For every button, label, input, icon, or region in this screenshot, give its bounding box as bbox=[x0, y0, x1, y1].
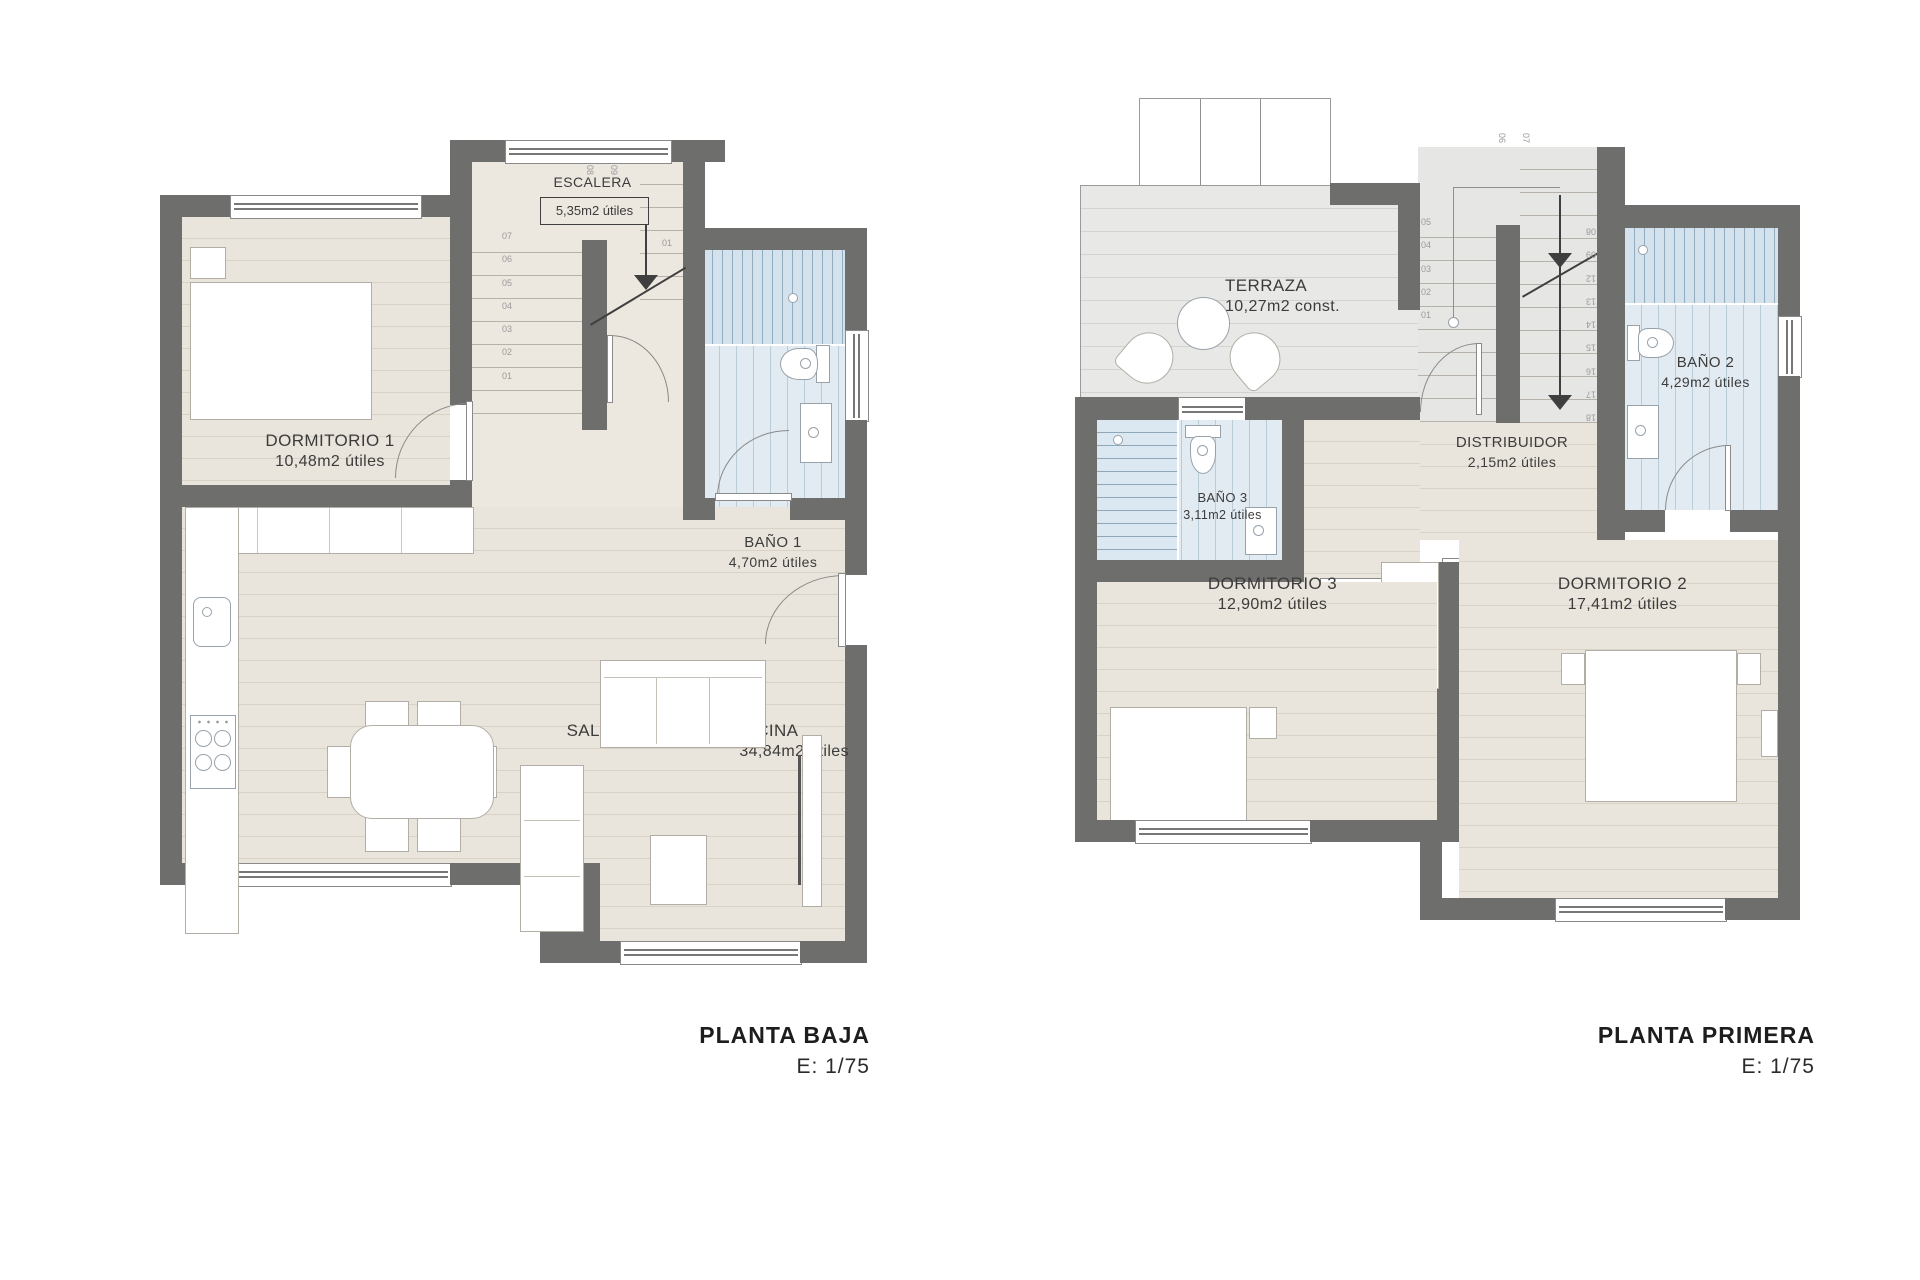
plan-title: PLANTA BAJA bbox=[550, 1022, 870, 1049]
stair-step-numbers-top: 0809 bbox=[578, 165, 626, 175]
sofa-back-line bbox=[604, 677, 762, 678]
handrail bbox=[1453, 187, 1454, 322]
room-name: DORMITORIO 2 bbox=[1490, 573, 1755, 595]
shower-area bbox=[1625, 228, 1778, 303]
burner bbox=[214, 730, 231, 747]
stairwell-outline bbox=[1139, 98, 1331, 186]
sofa-seat-line bbox=[709, 677, 710, 744]
bedroom1-window bbox=[230, 195, 422, 219]
room-name: DISTRIBUIDOR bbox=[1423, 433, 1601, 453]
wall-segment bbox=[683, 140, 705, 250]
room-area: 3,11m2 útiles bbox=[1150, 507, 1295, 523]
wall-segment bbox=[580, 941, 620, 963]
hall-floor bbox=[1304, 420, 1420, 582]
room-area: 5,35m2 útiles bbox=[556, 203, 633, 218]
room-area: 4,29m2 útiles bbox=[1633, 373, 1778, 391]
burner bbox=[214, 754, 231, 771]
washbasin-drain bbox=[1635, 425, 1646, 436]
room-name: BAÑO 1 bbox=[698, 533, 848, 553]
sofa bbox=[600, 660, 766, 748]
hob bbox=[190, 715, 236, 789]
stair-step-number: 01 bbox=[662, 238, 672, 248]
wall-segment bbox=[1398, 183, 1420, 310]
bathroom1-window bbox=[845, 330, 869, 422]
shower-drain bbox=[1638, 245, 1648, 255]
kitchen-sink bbox=[193, 597, 231, 647]
room-name: BAÑO 3 bbox=[1150, 490, 1295, 507]
stair-arrow bbox=[1548, 395, 1572, 410]
living-room-window-right bbox=[620, 941, 802, 965]
wall-segment bbox=[1778, 205, 1800, 316]
plan-caption: PLANTA BAJA E: 1/75 bbox=[550, 1022, 870, 1079]
burner bbox=[195, 754, 212, 771]
washbasin-drain bbox=[808, 427, 819, 438]
wall-segment bbox=[790, 498, 845, 520]
wall-segment bbox=[1245, 397, 1420, 420]
room-label-distribuidor: DISTRIBUIDOR 2,15m2 útiles bbox=[1423, 433, 1601, 471]
wall-segment bbox=[1725, 898, 1800, 920]
wall-segment bbox=[1442, 898, 1555, 920]
escalera-area-box: 5,35m2 útiles bbox=[540, 197, 649, 225]
wall-segment bbox=[1420, 820, 1459, 842]
wall-segment bbox=[845, 250, 867, 330]
bathroom2-window bbox=[1778, 316, 1802, 378]
stair-leader-line bbox=[645, 225, 647, 275]
room-area: 2,15m2 útiles bbox=[1423, 453, 1601, 471]
sofa-seat-line bbox=[524, 820, 580, 821]
room-label-bano3: BAÑO 3 3,11m2 útiles bbox=[1150, 490, 1295, 523]
bed bbox=[1585, 650, 1737, 802]
shower-screen-line bbox=[1625, 303, 1778, 305]
door-leaf bbox=[607, 335, 613, 403]
plan-planta-primera: TERRAZA 10,27m2 const. 0504030201 0607 0… bbox=[1075, 95, 1815, 995]
stair-step-line bbox=[1200, 99, 1201, 185]
sink-drain bbox=[202, 607, 212, 617]
wall-segment bbox=[182, 485, 472, 507]
handrail-end bbox=[1448, 317, 1459, 328]
wall-segment bbox=[1437, 562, 1459, 827]
door-leaf bbox=[838, 573, 846, 647]
tv-line bbox=[798, 755, 801, 885]
nightstand bbox=[1737, 653, 1761, 685]
wall-segment bbox=[1310, 820, 1420, 842]
wall-segment bbox=[845, 645, 867, 963]
bed bbox=[190, 282, 372, 420]
radiator bbox=[1761, 710, 1778, 757]
wall-segment bbox=[1778, 376, 1800, 920]
toilet-drain bbox=[1197, 445, 1208, 456]
nightstand bbox=[190, 247, 226, 279]
stair-step-numbers: 0504030201 bbox=[1421, 211, 1443, 327]
stair-step-numbers-top: 0607 bbox=[1490, 133, 1538, 143]
toilet-tank bbox=[816, 345, 830, 383]
shower-drain bbox=[1113, 435, 1123, 445]
plan-caption: PLANTA PRIMERA E: 1/75 bbox=[1495, 1022, 1815, 1079]
stair-step-numbers: 080912131415161718 bbox=[1578, 219, 1596, 429]
chaise-sofa bbox=[520, 765, 584, 932]
stair-arrow bbox=[634, 275, 658, 290]
room-label-dormitorio3: DORMITORIO 3 12,90m2 útiles bbox=[1150, 573, 1395, 616]
bed bbox=[1110, 707, 1247, 822]
room-area: 17,41m2 útiles bbox=[1490, 595, 1755, 616]
room-name: DORMITORIO 3 bbox=[1150, 573, 1395, 595]
coffee-table bbox=[650, 835, 707, 905]
hob-knobs bbox=[195, 719, 231, 725]
bedroom2-window bbox=[1555, 898, 1727, 922]
wall-segment bbox=[1420, 842, 1442, 920]
wall-segment bbox=[420, 195, 472, 217]
wall-segment bbox=[1597, 147, 1625, 540]
room-name: DORMITORIO 1 bbox=[190, 430, 470, 452]
toilet-drain bbox=[1647, 337, 1658, 348]
door-leaf bbox=[1476, 343, 1482, 415]
stair-arrow bbox=[1548, 253, 1572, 268]
stair-step-numbers: 07060504030201 bbox=[502, 225, 526, 388]
wall-segment bbox=[1730, 510, 1778, 532]
room-area: 12,90m2 útiles bbox=[1150, 595, 1395, 616]
wall-segment bbox=[1625, 205, 1800, 228]
room-label-bano2: BAÑO 2 4,29m2 útiles bbox=[1633, 353, 1778, 391]
entrance-door-opening bbox=[845, 575, 867, 645]
living-room-window-left bbox=[225, 863, 452, 887]
wall-segment bbox=[1282, 420, 1304, 560]
washbasin-drain bbox=[1253, 525, 1264, 536]
plan-title: PLANTA PRIMERA bbox=[1495, 1022, 1815, 1049]
dining-table bbox=[350, 725, 494, 819]
sofa-seat-line bbox=[524, 876, 580, 877]
plan-planta-baja: ESCALERA 5,35m2 útiles 07060504030201 08… bbox=[150, 135, 890, 985]
handrail bbox=[1453, 187, 1560, 188]
stair-direction-line bbox=[1559, 195, 1561, 400]
bedroom3-window bbox=[1135, 820, 1312, 844]
room-label-dormitorio2: DORMITORIO 2 17,41m2 útiles bbox=[1490, 573, 1755, 616]
door-leaf bbox=[1725, 445, 1731, 511]
nightstand bbox=[1561, 653, 1585, 685]
wall-segment bbox=[1075, 820, 1135, 842]
room-label-escalera: ESCALERA bbox=[525, 173, 660, 191]
burner bbox=[195, 730, 212, 747]
room-name: BAÑO 2 bbox=[1633, 353, 1778, 373]
room-area: 10,48m2 útiles bbox=[190, 452, 470, 473]
shower-area bbox=[703, 250, 845, 345]
toilet-drain bbox=[800, 358, 811, 369]
shower-drain bbox=[788, 293, 798, 303]
terrace-table bbox=[1177, 297, 1230, 350]
sofa-seat-line bbox=[656, 677, 657, 744]
wall-segment bbox=[160, 195, 182, 885]
stair-core-wall bbox=[582, 240, 607, 430]
terrace-door-window bbox=[1178, 397, 1247, 422]
stair-window bbox=[505, 140, 672, 164]
wall-segment bbox=[845, 420, 867, 575]
room-area: 4,70m2 útiles bbox=[698, 553, 848, 571]
room-label-dormitorio1: DORMITORIO 1 10,48m2 útiles bbox=[190, 430, 470, 473]
scale-label: E: 1/75 bbox=[550, 1055, 870, 1079]
wall-segment bbox=[800, 941, 867, 963]
floor-plan-sheet: ESCALERA 5,35m2 útiles 07060504030201 08… bbox=[0, 0, 1920, 1280]
wall-segment bbox=[705, 228, 867, 250]
scale-label: E: 1/75 bbox=[1495, 1055, 1815, 1079]
stair-core-wall bbox=[1496, 225, 1520, 423]
door-leaf bbox=[715, 493, 792, 501]
nightstand bbox=[1249, 707, 1277, 739]
room-label-bano1: BAÑO 1 4,70m2 útiles bbox=[698, 533, 848, 571]
room-name: ESCALERA bbox=[525, 173, 660, 191]
toilet-bowl bbox=[780, 348, 818, 380]
wall-segment bbox=[705, 498, 715, 520]
tv-unit bbox=[802, 735, 822, 907]
wall-segment bbox=[1075, 397, 1097, 842]
wall-segment bbox=[1625, 510, 1665, 532]
wall-segment bbox=[683, 250, 705, 520]
stair-step-line bbox=[1260, 99, 1261, 185]
